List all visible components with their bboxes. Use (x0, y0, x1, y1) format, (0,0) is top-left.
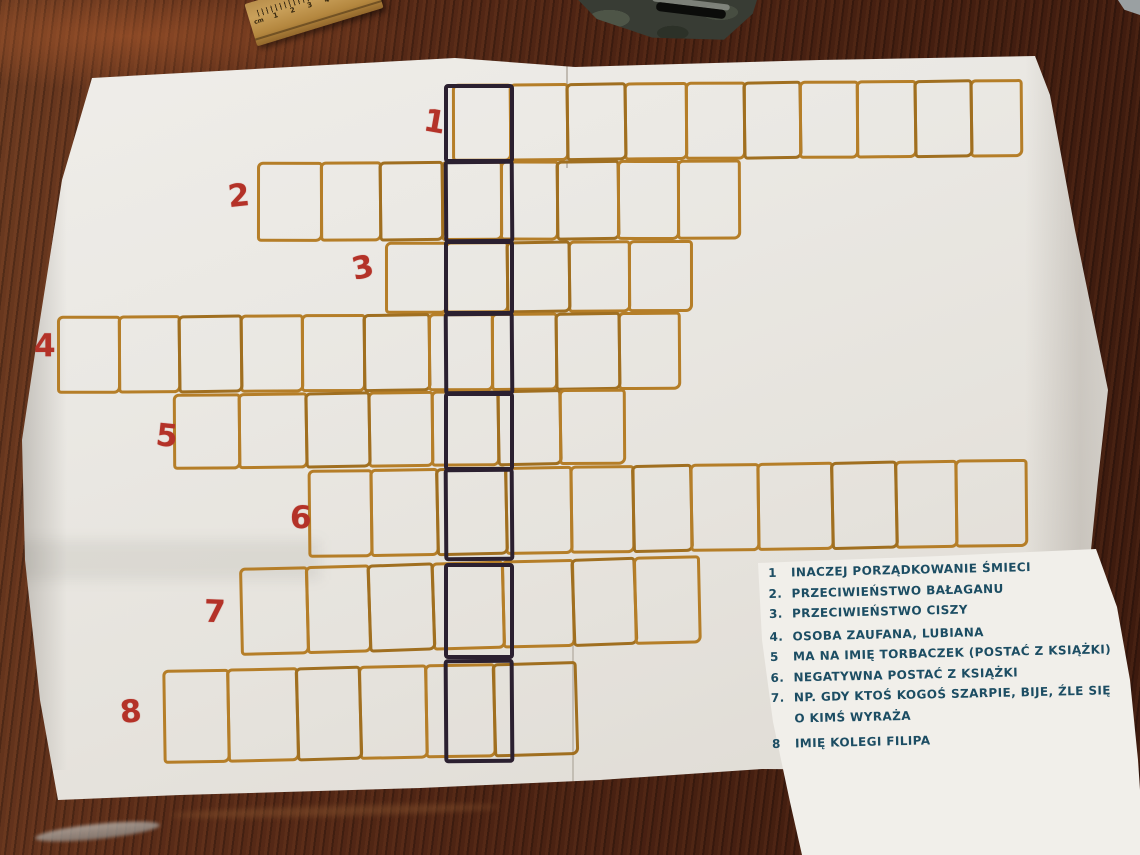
grid-cell (628, 240, 693, 312)
clue-number: 6. (770, 667, 793, 688)
grid-cell (913, 79, 973, 158)
grid-cell (226, 667, 300, 762)
grid-cell (295, 666, 364, 762)
grid-cell (565, 82, 627, 161)
grid-row-number: 6 (290, 500, 312, 536)
grid-cell (368, 391, 435, 468)
grid-cell (856, 80, 918, 159)
grid-cell (617, 160, 680, 240)
clue-text: NP. GDY KTOŚ KOGOŚ SZARPIE, BIJE, ŹLE SI… (794, 680, 1112, 728)
grid-cell (631, 464, 694, 553)
grid-cell (369, 468, 439, 557)
grid-row-number: 7 (203, 594, 226, 631)
grid-cell (366, 562, 436, 652)
clue-text: PRZECIWIEŃSTWO CISZY (792, 599, 968, 623)
clue-number: 5 (770, 646, 793, 667)
crossword-row-3 (385, 240, 693, 314)
grid-cell (304, 391, 372, 468)
grid-cell (690, 463, 761, 552)
answer-column-cell (444, 563, 514, 659)
clue-item-7: 7.NP. GDY KTOŚ KOGOŚ SZARPIE, BIJE, ŹLE … (771, 680, 1124, 729)
clue-number: 2. (768, 583, 791, 604)
grid-cell (301, 314, 366, 392)
grid-cell (239, 566, 310, 655)
grid-cell (677, 159, 741, 239)
answer-column-cell (444, 392, 514, 471)
answer-column-cell (444, 160, 515, 243)
grid-cell (970, 79, 1024, 157)
grid-cell (570, 465, 636, 554)
grid-cell (362, 313, 431, 392)
grid-cell (559, 389, 626, 465)
grid-row-number: 4 (34, 328, 56, 364)
grid-cell (238, 392, 309, 469)
clue-list: 1INACZEJ PORZĄDKOWANIE ŚMIECI2.PRZECIWIE… (768, 555, 1124, 754)
grid-cell (830, 460, 899, 550)
crossword-row-6 (307, 459, 1028, 558)
grid-cell (305, 564, 372, 654)
grid-cell (618, 312, 682, 390)
grid-cell (504, 466, 573, 555)
crossword-row-5 (173, 388, 627, 470)
grid-cell (378, 161, 444, 242)
crossword-row-8 (162, 661, 579, 764)
grid-cell (568, 240, 632, 312)
grid-cell (177, 314, 243, 393)
grid-cell (320, 161, 382, 241)
grid-cell (173, 393, 241, 469)
grid-cell (358, 664, 429, 759)
grid-cell (894, 460, 958, 549)
grid-cell (624, 82, 689, 161)
grid-cell (240, 314, 305, 392)
answer-column-cell (444, 659, 515, 763)
grid-cell (308, 469, 374, 558)
answer-column-cell (444, 468, 515, 561)
grid-cell (118, 315, 182, 393)
grid-cell (257, 162, 323, 242)
clue-text: IMIĘ KOLEGI FILIPA (795, 730, 931, 754)
grid-cell (555, 160, 620, 241)
grid-cell (509, 83, 570, 162)
grid-cell (570, 557, 638, 647)
grid-cell (505, 240, 571, 313)
answer-column-cell (444, 312, 515, 395)
crossword-row-1 (452, 79, 1024, 162)
grid-cell (57, 316, 121, 394)
clue-number: 4. (769, 626, 792, 647)
grid-cell (554, 312, 621, 391)
answer-column-cell (444, 240, 514, 315)
grid-row-number: 5 (154, 417, 179, 455)
grid-cell (799, 81, 859, 159)
grid-cell (162, 669, 230, 764)
grid-row-number: 8 (118, 693, 143, 731)
grid-cell (954, 459, 1028, 548)
grid-row-number: 3 (348, 248, 377, 288)
clue-number: 1 (768, 562, 791, 583)
grid-cell (385, 242, 448, 314)
answer-column-cell (444, 84, 514, 163)
crossword-row-4 (57, 312, 682, 394)
clue-number: 7. (771, 687, 795, 729)
grid-row-number: 2 (226, 177, 251, 215)
grid-cell (685, 82, 746, 160)
grid-cell (756, 462, 834, 551)
grid-cell (742, 81, 802, 160)
grid-cell (633, 555, 702, 644)
clue-number: 8 (772, 733, 795, 754)
clue-number: 3. (769, 603, 792, 624)
